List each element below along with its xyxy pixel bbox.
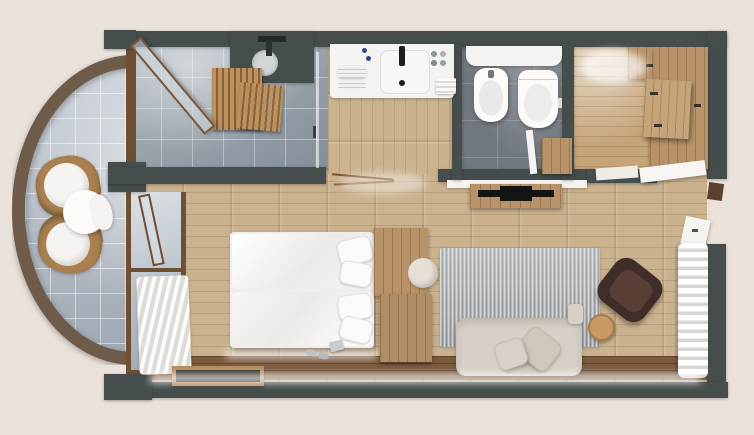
wc-shelf (466, 46, 562, 66)
entry-right-wall (707, 31, 727, 179)
washbasin (380, 50, 430, 94)
window-mullion (128, 268, 184, 272)
entry-ceiling-glow (580, 50, 646, 84)
shower-head (266, 40, 272, 56)
perimeter-led-glow (150, 374, 700, 383)
bedroom-pouf (408, 258, 438, 288)
toiletry-bottle-blue-1 (362, 48, 367, 53)
toilet-seat (524, 84, 552, 122)
bed-foot-glow (226, 350, 376, 358)
wardrobe-handle-4 (694, 104, 701, 107)
wardrobe-handle-1 (650, 92, 658, 95)
bedroom-sheer-curtain (136, 275, 191, 375)
living-sheer-curtain (678, 243, 708, 378)
wardrobe-shelf-unit (643, 79, 692, 139)
towel-stack (338, 66, 366, 78)
living-side-table (588, 314, 615, 341)
wardrobe-handle-3 (646, 64, 653, 67)
wall-under-shower (108, 167, 326, 184)
bottom-left-wall-block (104, 374, 152, 400)
shower-arm (258, 36, 286, 42)
tv-center (500, 186, 532, 201)
sofa-arm-extension (568, 304, 583, 324)
terrace-door-handle (692, 229, 698, 232)
right-door-wood-piece (707, 182, 724, 201)
shower-glass-screen (316, 52, 319, 168)
bidet-basin (479, 80, 503, 116)
wood-slat-screen-2 (236, 82, 284, 132)
toiletry-bottle-blue-2 (366, 56, 371, 61)
wardrobe-handle-2 (654, 124, 662, 127)
vanity-faucet-base (399, 80, 405, 86)
window-frame-shower (126, 44, 136, 170)
vanity-faucet (399, 46, 405, 66)
toilet-tank-line (519, 79, 557, 80)
hand-towel (436, 78, 456, 94)
window-frame-left (126, 192, 131, 374)
shower-glass-handle (313, 126, 316, 138)
headboard-unit-lower (380, 294, 432, 362)
living-right-wall (707, 244, 726, 394)
floor-plan-render (0, 0, 754, 435)
toiletries-group (430, 50, 452, 68)
towel-stack-2 (338, 80, 366, 90)
bidet-faucet (488, 70, 494, 78)
hallway-glow (340, 172, 426, 194)
wc-door-handle (558, 98, 562, 108)
wc-wood-block (542, 138, 572, 174)
